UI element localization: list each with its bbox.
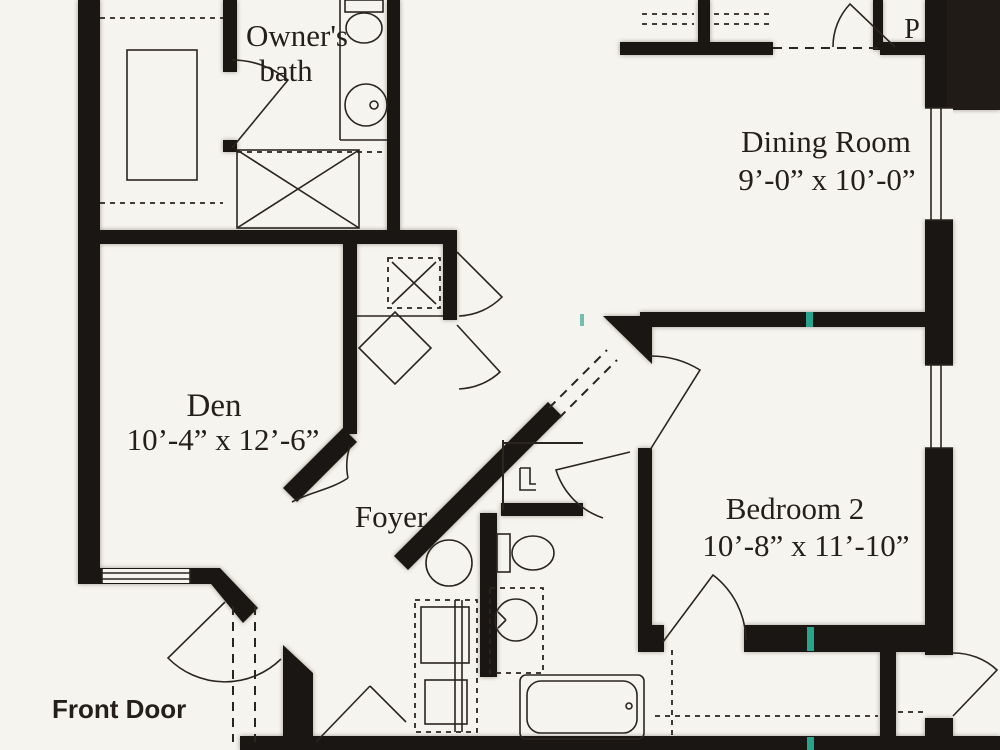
wall-right-3: [925, 448, 953, 655]
wall-bedroom2-top: [640, 312, 925, 327]
wall-utility-right: [443, 244, 457, 320]
wall-closet-top-right: [744, 625, 925, 652]
label-den-dims: 10’-4” x 12’-6”: [127, 422, 320, 457]
wall-wc-bottom: [501, 503, 583, 516]
label-front-door: Front Door: [52, 694, 186, 724]
label-dining-name: Dining Room: [741, 124, 911, 159]
wall-pantry-left: [873, 0, 883, 50]
exterior-dark-corner: [947, 0, 1000, 110]
wall-closet-right: [880, 650, 896, 738]
wall-bedroom2-left: [638, 448, 652, 640]
wall-dining-top: [620, 42, 773, 55]
label-bedroom2-name: Bedroom 2: [726, 491, 865, 526]
window-den: [102, 569, 190, 583]
label-dining-dims: 9’-0” x 10’-0”: [738, 162, 915, 197]
wall-closet-top-left: [638, 625, 664, 652]
label-owners-bath-line1: Owner's: [246, 18, 348, 53]
wall-bath-divider: [223, 0, 237, 72]
wall-den-top: [78, 230, 457, 244]
window-bedroom2: [925, 365, 953, 448]
wall-bottom-outer: [240, 736, 1000, 750]
label-bedroom2-dims: 10’-8” x 11’-10”: [702, 528, 909, 563]
wall-right-2: [925, 220, 953, 365]
teal-mark-3: [807, 737, 814, 750]
teal-mark-4: [580, 314, 584, 326]
floor-plan-canvas: Owner's bath Dining Room 9’-0” x 10’-0” …: [0, 0, 1000, 750]
label-pantry: P: [904, 14, 920, 45]
wall-bath-left: [480, 513, 497, 677]
label-owners-bath-line2: bath: [259, 53, 313, 88]
wall-den-right: [343, 244, 357, 434]
window-dining: [925, 108, 953, 220]
label-foyer: Foyer: [355, 499, 428, 534]
wall-closet-divider-top: [698, 0, 710, 55]
wall-bath-right: [387, 0, 400, 244]
teal-mark-2: [807, 627, 814, 651]
wall-left-outer: [78, 0, 100, 584]
wall-bath-divider-stub: [223, 140, 237, 152]
wall-right-4: [925, 718, 953, 750]
teal-mark-1: [806, 312, 813, 327]
label-den-name: Den: [187, 388, 242, 424]
floor-plan-page: Owner's bath Dining Room 9’-0” x 10’-0” …: [0, 0, 1000, 750]
